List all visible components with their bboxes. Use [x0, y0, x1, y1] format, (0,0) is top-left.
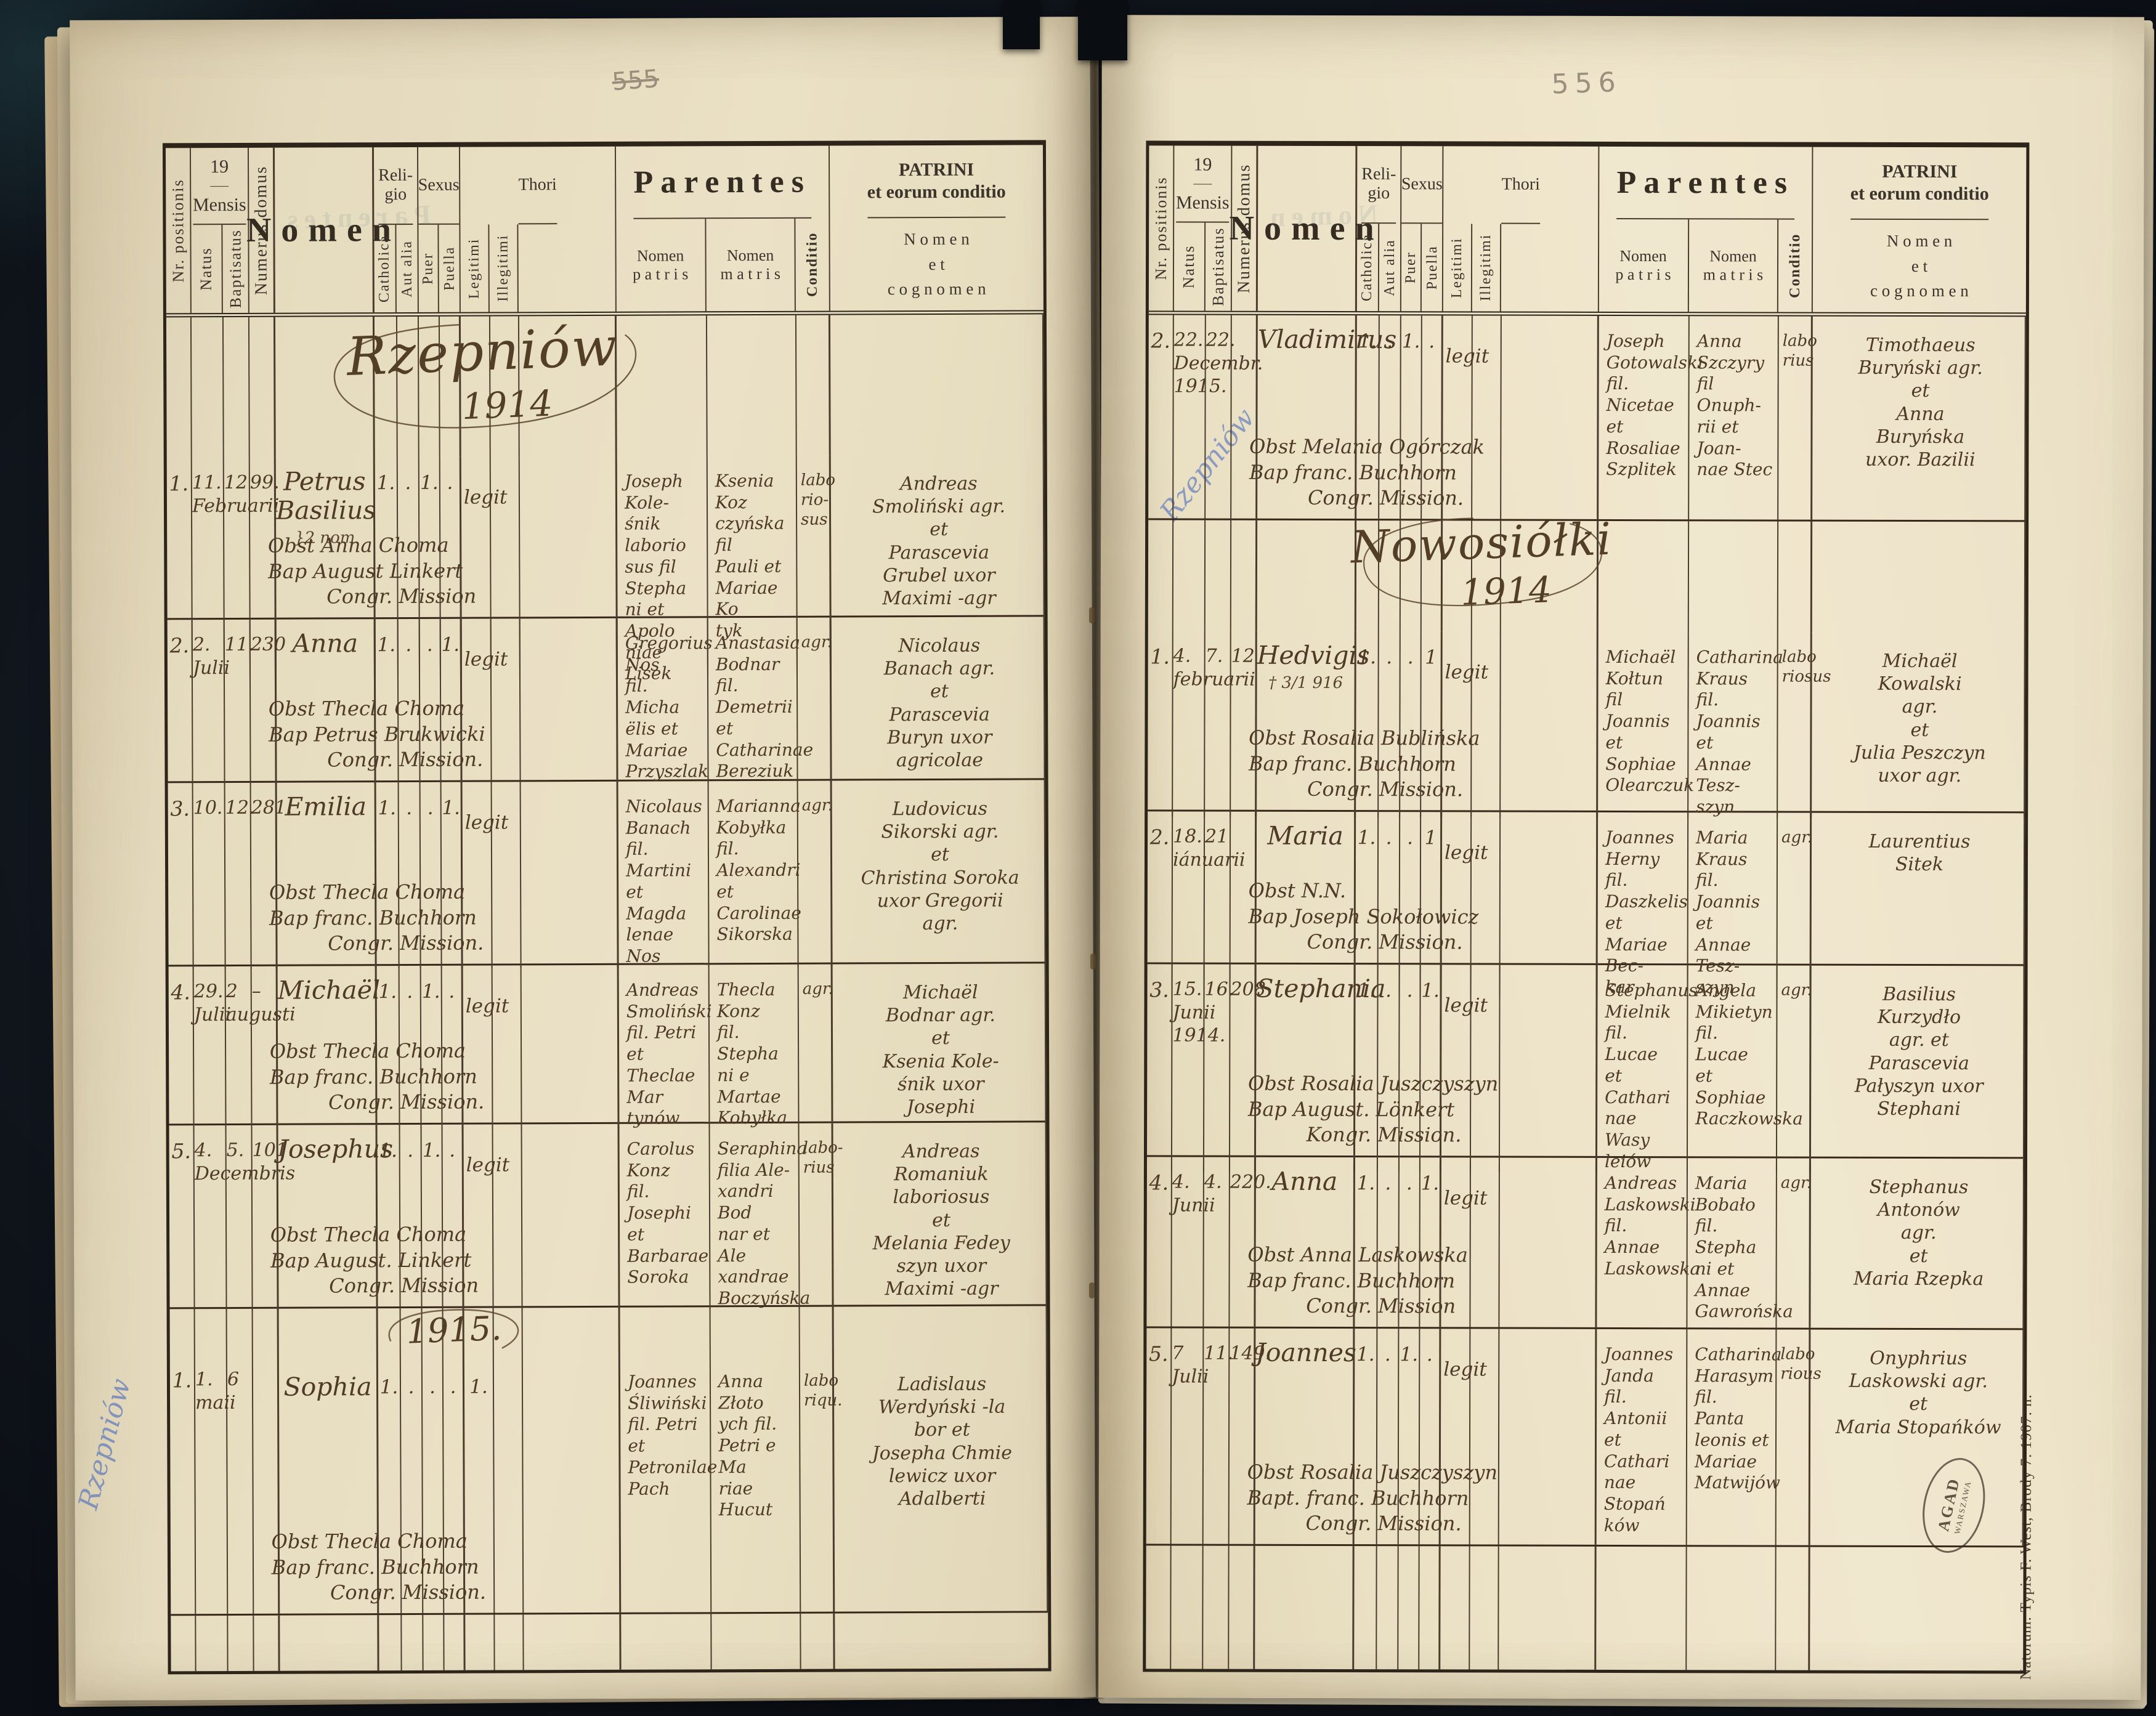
- cell-baptisatus: 7.: [1205, 631, 1231, 817]
- cell-nr: 1.: [170, 1309, 197, 1614]
- cell: [1255, 1546, 1354, 1669]
- right-page: 556 Rzepniów Natorum. Typis F. West, Bro…: [1098, 15, 2144, 1700]
- header-aut-alia: Aut alia: [396, 225, 418, 312]
- cell: [617, 315, 708, 456]
- cell-natus: 10.: [193, 783, 226, 969]
- header-puella: Puella: [1422, 224, 1443, 311]
- cell: [166, 317, 192, 458]
- cell-nr: 4.: [169, 966, 195, 1131]
- cell: [1778, 522, 1812, 633]
- header-legitimi: Legitimi: [460, 225, 489, 312]
- cell: [1687, 1547, 1776, 1670]
- cell: [196, 1616, 228, 1671]
- cell-nr: 5.: [169, 1125, 195, 1311]
- cell: [711, 1614, 801, 1670]
- header-patrini-group: PATRINI et eorum conditio N o m e n e t …: [830, 145, 1044, 310]
- cell: [1810, 1547, 2023, 1671]
- cell: [275, 317, 375, 458]
- cell-nomen-matris: Maria Bobało fil. Stepha ni et Annae Gaw…: [1687, 1158, 1777, 1327]
- cell-natus: 4. Decembris: [195, 1125, 227, 1311]
- header-nomen-matris: Nomen m a t r i s: [1689, 219, 1778, 312]
- midwife-baptizer-note: Obst Melania OgórczakBap franc. Buchhorn…: [1249, 436, 1653, 509]
- header-nomen: Nomen Parentes: [275, 147, 375, 313]
- cell-conditio: labo riosus: [1778, 633, 1812, 819]
- header-thori: Thori: [518, 147, 557, 224]
- cell: [519, 316, 617, 457]
- header-patrini-group: PATRINI et eorum conditio N o m e n e t …: [1813, 147, 2027, 313]
- cell: [444, 1615, 465, 1670]
- header-religio-group: Reli- gio Catholica Aut alia: [1357, 146, 1402, 311]
- cell: [1379, 520, 1401, 631]
- header-nomen-patris: Nomen p a t r i s: [1599, 219, 1689, 312]
- cell-nomen-matris: Angela Mikietyn fil. Lucae et Sophiae Ra…: [1688, 965, 1778, 1173]
- black-tab: [1003, 0, 1040, 49]
- cell: [1443, 520, 1472, 631]
- cell-nomen-matris: Anna Szczyry fil Onuph- rii et Joan- nae…: [1689, 316, 1779, 519]
- cell: [1599, 521, 1689, 632]
- cell: [801, 1614, 835, 1669]
- register-table: Nr. positionis 19 Mensis Natus Baptisatu…: [163, 140, 1052, 1674]
- cell-nr: 3.: [1147, 964, 1173, 1172]
- cell: [465, 1615, 495, 1670]
- header-mensis: Mensis: [1176, 184, 1230, 222]
- cell: [1146, 1545, 1171, 1669]
- register-row: 2. 2. Julii 11. 230 Anna 1. . . 1. legit…: [168, 617, 1045, 783]
- header-religio: Reli- gio: [378, 147, 413, 225]
- cell-natus: 4. Junii: [1172, 1157, 1204, 1326]
- cell: [1401, 520, 1422, 631]
- header-sexus-group: Sexus Puer Puella: [418, 147, 461, 312]
- cell-natus: 1. maii: [195, 1309, 229, 1614]
- midwife-baptizer-note: Obst Thecla ChomaBap franc. BuchhornCong…: [269, 881, 673, 955]
- cell-patrini: Nicolaus Banach agr. et Parascevia Buryn…: [832, 617, 1045, 782]
- cell: [280, 1615, 379, 1671]
- cell: [1229, 1546, 1255, 1669]
- header-puer: Puer: [1401, 224, 1422, 311]
- cell: [228, 1616, 254, 1671]
- header-puer: Puer: [418, 225, 439, 312]
- header-religio: Reli- gio: [1361, 146, 1396, 224]
- cell-natus: 2. Julii: [193, 620, 225, 784]
- cell-patrini: Timothaeus Buryński agr. et Anna Buryńsk…: [1812, 317, 2026, 520]
- header-nomen: Nomen Nomen: [1258, 146, 1358, 311]
- table-header: Nr. positionis 19 Mensis Natus Baptisatu…: [1149, 145, 2027, 317]
- header-thori-group: Thori Legitimi Illegitimi: [1443, 146, 1600, 312]
- cell: [1812, 522, 2025, 633]
- cell-patrini: Onyphrius Laskowski agr. et Maria Stopań…: [1810, 1330, 2024, 1546]
- cell: [495, 1614, 524, 1670]
- midwife-baptizer-note: Obst Anna LaskowskaBap franc. BuchhornCo…: [1247, 1244, 1651, 1317]
- header-nomen-patris: Nomen p a t r i s: [615, 219, 707, 312]
- header-natus: Natus: [190, 225, 222, 313]
- register-row: 5. 4. Decembris 5. 101. Josephus 1. . 1.…: [169, 1122, 1047, 1309]
- folio-number-pencil: 556: [1551, 67, 1623, 100]
- table-header: Nr. positionis 19 Mensis Natus Baptisatu…: [166, 145, 1044, 317]
- cell-natus: 15. Junii 1914.: [1172, 964, 1205, 1172]
- cell-nr: 2.: [168, 620, 193, 784]
- stitch-hole: [1089, 607, 1095, 623]
- register-row: 2. 22. Decembr. 1915. 22. Vladimirus 1. …: [1148, 315, 2026, 522]
- cell: [254, 1616, 280, 1671]
- header-blank-column: [1501, 224, 1599, 312]
- cell: [1422, 520, 1443, 631]
- cell-nomen-matris: Seraphina filia Ale- xandri Bod nar et A…: [710, 1123, 800, 1309]
- cell: [440, 317, 461, 457]
- cell: [1419, 1546, 1440, 1669]
- cell-nomen-matris: Catharina Kraus fil. Joannis et Annae Te…: [1688, 632, 1778, 818]
- cell: [524, 1614, 621, 1670]
- cell: [1171, 1545, 1203, 1669]
- register-row: 1. 1. maii 6 Sophia 1. . . . 1. Joannes …: [170, 1306, 1048, 1616]
- cell-conditio: labo rius: [1778, 317, 1813, 520]
- cell-nomen-matris: Anastasia Bodnar fil. Demetrii et Cathar…: [708, 618, 798, 783]
- header-nr-positionis: Nr. positionis: [166, 148, 192, 313]
- header-thori: Thori: [1502, 147, 1540, 224]
- black-tab: [1078, 0, 1127, 60]
- cell: [1472, 520, 1501, 631]
- cell-patrini: Ladislaus Werdyński -la bor et Josepha C…: [834, 1306, 1048, 1611]
- header-patrini: PATRINI et eorum conditio: [867, 145, 1005, 219]
- cell-nomen-matris: Catharina Harasym fil. Panta leonis et M…: [1687, 1329, 1777, 1545]
- header-parentes-group: Parentes Nomen p a t r i s Nomen m a t r…: [1599, 147, 1814, 312]
- cell: [379, 1615, 402, 1670]
- header-baptisatus: Baptisatus: [1206, 223, 1231, 311]
- cell: [249, 317, 276, 458]
- cell: [1231, 520, 1257, 631]
- header-parentes-group: Parentes Nomen p a t r i s Nomen m a t r…: [616, 146, 830, 312]
- cell: [1206, 520, 1231, 631]
- header-catholica: Catholica: [373, 225, 396, 312]
- midwife-baptizer-note: Obst Thecla ChomaBap Petrus BrukwickiCon…: [269, 697, 672, 771]
- header-religio-group: Reli- gio Catholica Aut alia: [374, 147, 419, 312]
- header-conditio: Conditio: [1778, 220, 1812, 312]
- flourish-icon: [377, 1299, 540, 1367]
- cell: [171, 1616, 196, 1671]
- cell-natus: 4. februarii: [1173, 631, 1206, 817]
- cell: [707, 315, 797, 456]
- register-row: 4. 29. Julii 2 augusti – Michaël 1. . 1.…: [169, 963, 1047, 1125]
- midwife-baptizer-note: Obst Rosalia BublińskaBap franc. Buchhor…: [1249, 727, 1652, 801]
- cell: [1499, 1547, 1596, 1670]
- register-row: 1. 11. Februarii 12 99. Petrus Basilius}…: [167, 455, 1045, 620]
- cell: [1354, 1546, 1377, 1669]
- cell: [1257, 520, 1356, 631]
- cell-conditio: agr.: [1777, 966, 1812, 1173]
- cell: [1203, 1546, 1229, 1669]
- cell: [1398, 1546, 1419, 1669]
- header-mensis-group: 19 Mensis Natus Baptisatus: [1174, 145, 1233, 310]
- register-row: 4. 4. Junii 4. 220. Anna 1. . . 1. legit…: [1146, 1157, 2024, 1330]
- margin-note-blue: Rzepniów: [73, 1375, 137, 1513]
- section-title-row: Rzepniów 1914: [166, 314, 1044, 458]
- cell-nr: 1.: [1148, 631, 1173, 817]
- cell-baptisatus: 22.: [1206, 315, 1232, 519]
- cell-conditio: agr.: [798, 618, 832, 782]
- cell: [461, 317, 491, 457]
- header-catholica: Catholica: [1356, 224, 1379, 311]
- cell-natus: 7 Julii: [1172, 1328, 1204, 1544]
- cell-patrini: Ludovicus Sikorski agr. et Christina Sor…: [832, 780, 1046, 966]
- header-sexus: Sexus: [1401, 146, 1443, 224]
- empty-row: [1146, 1545, 2023, 1670]
- midwife-baptizer-note: Obst Thecla ChomaBap franc. BuchhornCong…: [270, 1040, 673, 1114]
- midwife-baptizer-note: Obst Anna ChomaBap August LinkertCongr. …: [268, 534, 671, 608]
- cell: [835, 1613, 1048, 1669]
- photograph-of-baptism-register: { "labels":{ "year":"19", "nr":"Nr. posi…: [0, 0, 2156, 1716]
- header-sexus: Sexus: [418, 147, 460, 225]
- midwife-baptizer-note: Obst Thecla ChomaBap franc. BuchhornCong…: [272, 1530, 675, 1604]
- cell-baptisatus: 6: [227, 1309, 254, 1614]
- cell: [1501, 521, 1599, 632]
- cell-patrini: Stephanus Antonów agr. et Maria Rzepka: [1810, 1159, 2024, 1329]
- header-natus: Natus: [1173, 222, 1206, 310]
- cell: [1470, 1546, 1499, 1669]
- cell: [375, 317, 398, 457]
- header-patrini-sub: N o m e n e t c o g n o m e n: [1870, 220, 1969, 312]
- register-row: 5. 7 Julii 11. 149. Joannes 1. . 1. . le…: [1146, 1328, 2024, 1547]
- cell-baptisatus: 16.: [1204, 965, 1231, 1172]
- midwife-baptizer-note: Obst Rosalia JuszczyszynBap August. Lönk…: [1248, 1073, 1651, 1146]
- cell-baptisatus: 4.: [1204, 1157, 1230, 1327]
- register-row: 2. 18. iánuarii 21 Maria 1. . . 1 legit …: [1148, 811, 2025, 966]
- cell: [1689, 521, 1778, 632]
- cell-nr: 2.: [1148, 315, 1174, 518]
- left-page: 555 Rzepniów Nr. positionis 19 Mensis Na…: [70, 17, 1096, 1701]
- cell-patrini: Basilius Kurzydło agr. et Parascevia Pał…: [1811, 966, 2025, 1173]
- cell-patrini: Michaël Bodnar agr. et Ksenia Kole- śnik…: [833, 963, 1047, 1128]
- header-nr-positionis: Nr. positionis: [1149, 145, 1175, 310]
- cell-conditio: agr.: [799, 965, 833, 1129]
- register-row: 1. 4. februarii 7. 12 Hedvigis† 3/1 916 …: [1148, 631, 2025, 813]
- cell-conditio: labo- rius: [800, 1123, 834, 1309]
- header-aut-alia: Aut alia: [1379, 224, 1401, 311]
- cell-conditio: agr.: [1777, 1159, 1811, 1328]
- header-year: 19: [1193, 146, 1212, 185]
- header-conditio: Conditio: [795, 219, 830, 311]
- header-mensis: Mensis: [193, 187, 246, 225]
- cell-conditio: labo riqu.: [800, 1307, 835, 1612]
- cell-nr: 5.: [1146, 1328, 1172, 1544]
- cell: [402, 1615, 423, 1670]
- section-title-1915: 1915.: [406, 1309, 503, 1351]
- cell-patrini: Andreas Romaniuk laboriosus et Melania F…: [833, 1122, 1047, 1309]
- cell-nomen-matris: Thecla Konz fil. Stepha ni e Martae Koby…: [710, 965, 800, 1130]
- cell: [1173, 520, 1206, 631]
- midwife-baptizer-note: Obst Thecla ChomaBap August. LinkertCong…: [270, 1223, 674, 1297]
- cell: [1356, 520, 1379, 631]
- section-title-row: Nowosiółki 1914: [1148, 520, 2025, 633]
- header-thori-group: Thori Legitimi Illegitimi: [460, 147, 617, 312]
- folio-number-pencil: 555: [611, 65, 660, 96]
- cell-nomen-matris: Anna Złoto ych fil. Petri e Ma riae Hucu…: [711, 1307, 801, 1613]
- cell: [1776, 1547, 1810, 1670]
- cell: [1596, 1547, 1687, 1670]
- cell-baptisatus: 11.: [225, 620, 251, 784]
- cell: [830, 314, 1044, 455]
- register-table: Nr. positionis 19 Mensis Natus Baptisatu…: [1143, 140, 2029, 1674]
- cell: [490, 316, 520, 456]
- cell-patrini: Michaël Kowalski agr. et Julia Peszczyn …: [1812, 633, 2025, 819]
- header-illegitimi: Illegitimi: [1472, 224, 1501, 311]
- cell: [1440, 1546, 1470, 1669]
- cell-natus: 29. Julii: [194, 966, 227, 1131]
- cell: [419, 317, 440, 457]
- cell-conditio: agr.: [798, 781, 833, 967]
- cell-conditio: labo rious: [1777, 1330, 1811, 1545]
- header-illegitimi: Illegitimi: [489, 224, 518, 312]
- cell-nr: 4.: [1146, 1157, 1172, 1326]
- cell: [796, 315, 831, 456]
- header-sexus-group: Sexus Puer Puella: [1401, 146, 1444, 311]
- stitch-hole: [1089, 1282, 1095, 1298]
- cell: [224, 317, 250, 458]
- cell-nr: 3.: [168, 783, 194, 969]
- cell: [423, 1615, 444, 1670]
- header-puella: Puella: [439, 225, 460, 312]
- midwife-baptizer-note: Obst N.N.Bap Joseph SokołowiczCongr. Mis…: [1248, 880, 1651, 953]
- header-blank-column: [518, 224, 615, 312]
- header-mensis-group: 19 Mensis Natus Baptisatus: [191, 148, 249, 313]
- cell-baptisatus: 2 augusti: [226, 966, 253, 1131]
- cell: [621, 1614, 711, 1670]
- cell: [1148, 520, 1173, 631]
- header-baptisatus: Baptisatus: [222, 225, 248, 313]
- cell: [1377, 1546, 1398, 1669]
- header-legitimi: Legitimi: [1443, 224, 1472, 311]
- midwife-baptizer-note: Obst Rosalia JuszczyszynBapt. franc. Buc…: [1247, 1462, 1650, 1535]
- register-row: 3. 10. 12. 281. Emilia 1. . . 1. legit N…: [168, 780, 1046, 966]
- header-parentes: Parentes: [1616, 147, 1794, 220]
- header-patrini: PATRINI et eorum conditio: [1850, 147, 1989, 220]
- empty-row: [171, 1613, 1048, 1671]
- register-row: 3. 15. Junii 1914. 16. 208 Stephania 1. …: [1147, 964, 2025, 1159]
- cell: [192, 317, 224, 458]
- header-patrini-sub: N o m e n e t c o g n o m e n: [887, 218, 986, 311]
- cell-baptisatus: 12.: [225, 783, 252, 969]
- cell-baptisatus: 11.: [1204, 1329, 1230, 1544]
- header-nomen-matris: Nomen m a t r i s: [706, 219, 796, 312]
- cell-nomen-matris: Marianna Kobyłka fil. Alexandri et Carol…: [709, 781, 799, 967]
- cell: [397, 317, 419, 457]
- cell-natus: 22. Decembr. 1915.: [1173, 315, 1206, 518]
- header-year: 19: [210, 148, 229, 187]
- stitch-hole: [1090, 953, 1096, 969]
- cell-baptisatus: 5.: [227, 1125, 253, 1311]
- header-parentes: Parentes: [633, 146, 811, 219]
